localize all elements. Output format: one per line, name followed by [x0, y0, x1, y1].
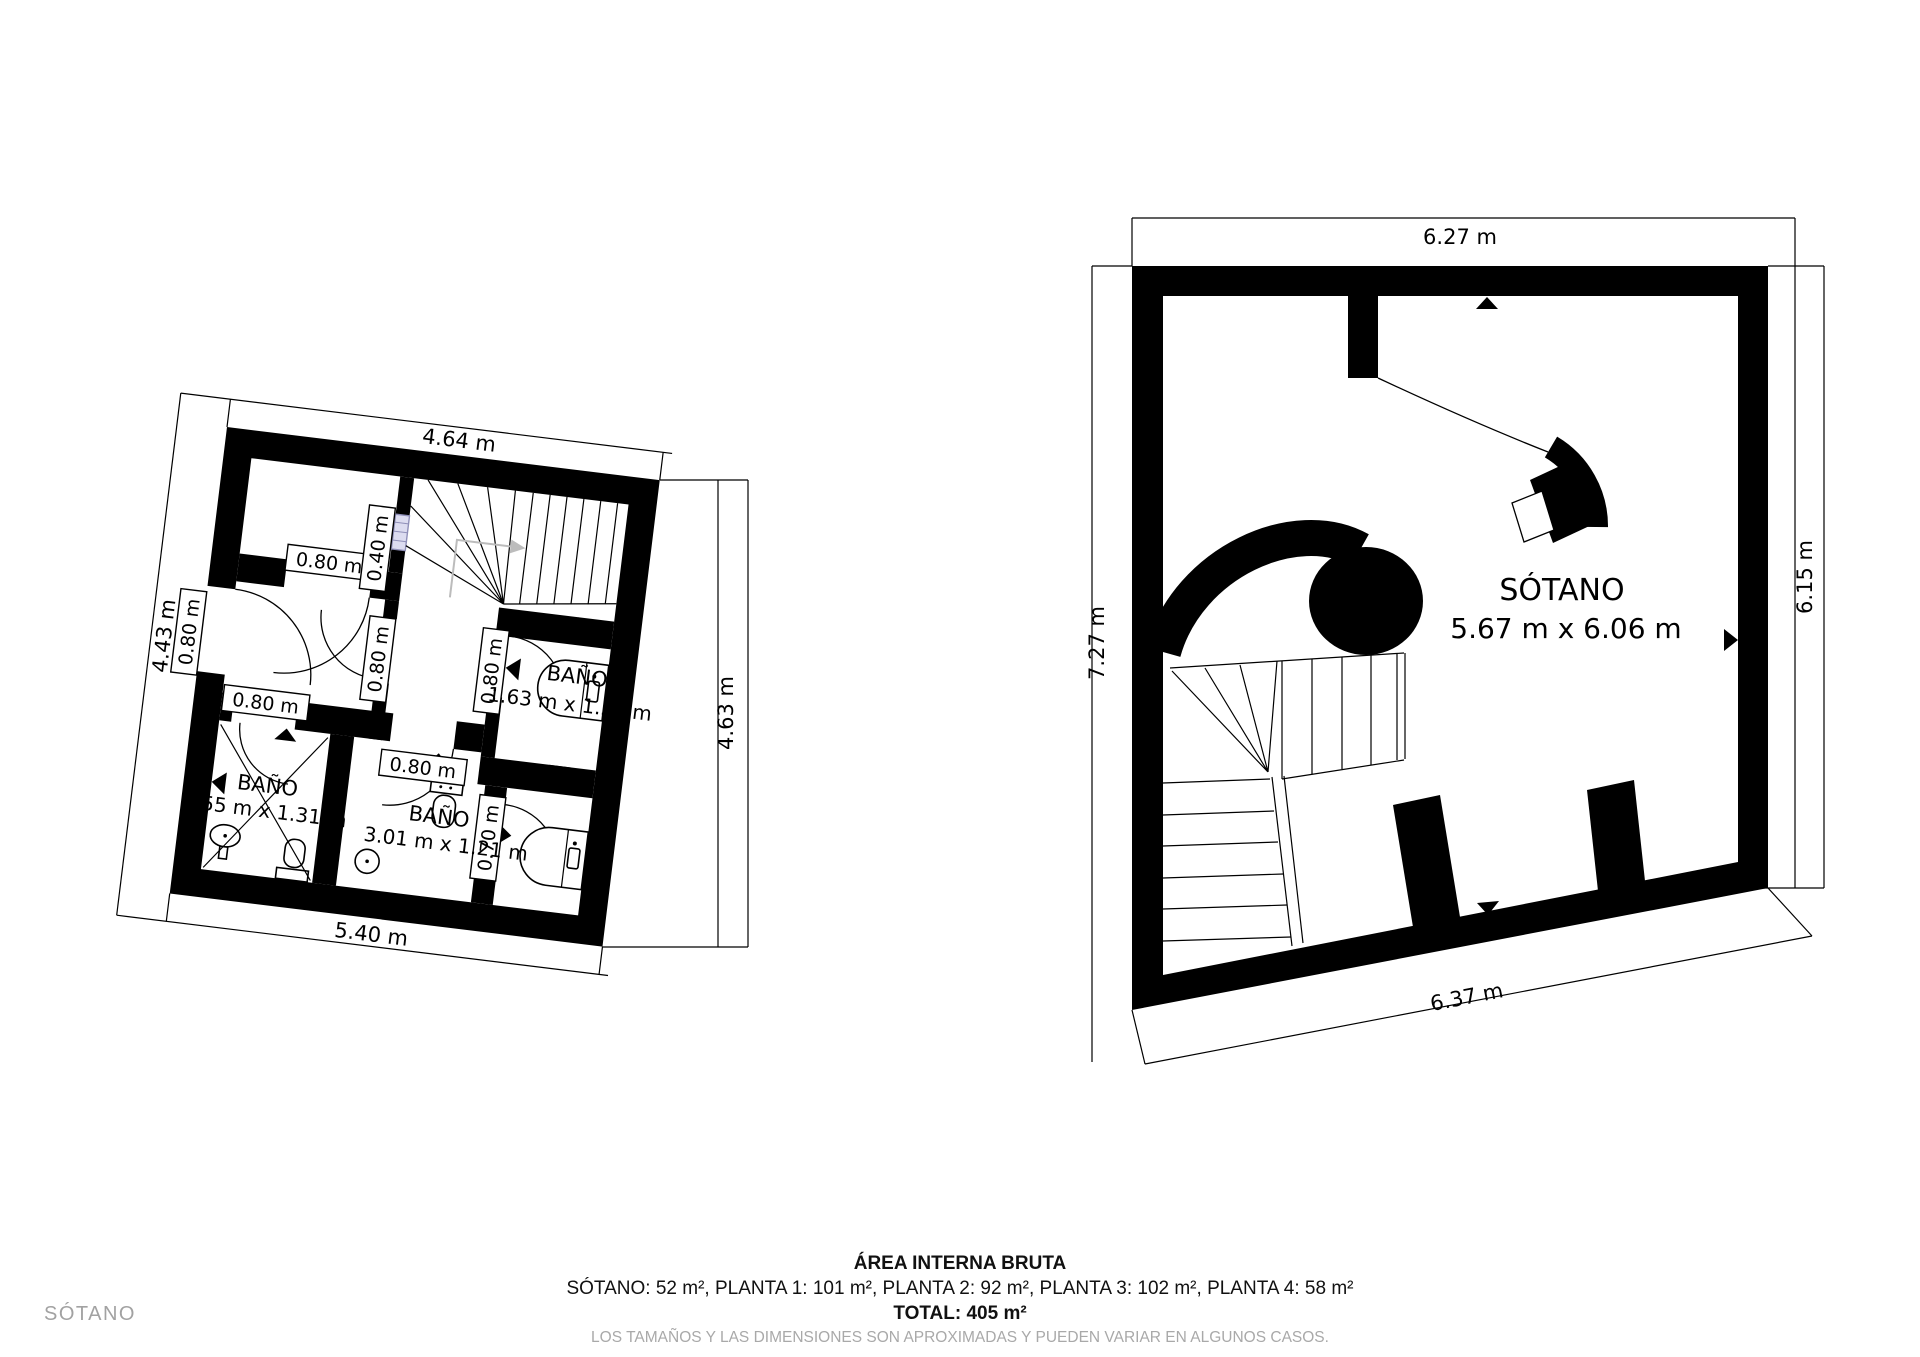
bottom-wall-stub-1 [1393, 795, 1460, 927]
toilet-icon-left [275, 838, 312, 883]
right-plan-dim-top: 6.27 m [1423, 225, 1497, 249]
sink-icon-left [207, 823, 241, 860]
left-plan-dim-right: 4.63 m [714, 676, 738, 750]
left-plan-dim-bottom: 5.40 m [333, 918, 409, 951]
top-wall-stub [1348, 296, 1378, 378]
left-plan-dim-top: 4.64 m [421, 424, 497, 457]
right-plan-dim-bottom: 6.37 m [1428, 978, 1505, 1016]
right-plan-dim-right: 6.15 m [1793, 540, 1817, 614]
spiral-stair-icon [1163, 538, 1423, 655]
footer-areas: SÓTANO: 52 m², PLANTA 1: 101 m², PLANTA … [0, 1278, 1920, 1300]
footer-info: ÁREA INTERNA BRUTA SÓTANO: 52 m², PLANTA… [0, 1253, 1920, 1347]
bottom-wall-stub-2 [1587, 780, 1645, 891]
footer-title: ÁREA INTERNA BRUTA [0, 1253, 1920, 1275]
right-plan-dim-left: 7.27 m [1085, 606, 1109, 680]
stairs-icon-right-plan [1163, 653, 1405, 946]
stair-walkline-arrow-icon [510, 539, 527, 555]
entry-door [1378, 378, 1598, 543]
stair-walkline [450, 540, 511, 604]
floorplan-canvas: 0.80 m 0.80 m 0.40 m 0.80 m 0.80 m 0.80 … [0, 0, 1920, 1357]
wall-markers-right-plan [1163, 297, 1738, 915]
footer-total: TOTAL: 405 m² [0, 1303, 1920, 1325]
right-floor-plan: 6.27 m 6.15 m 7.27 m 6.37 m [1085, 218, 1824, 1064]
left-floor-plan: 0.80 m 0.80 m 0.40 m 0.80 m 0.80 m 0.80 … [117, 393, 684, 977]
floor-tag-label: SÓTANO [44, 1303, 136, 1326]
sink-icon-mid [354, 848, 381, 875]
basement-room-name: SÓTANO [1499, 571, 1624, 608]
basement-room-dims: 5.67 m x 6.06 m [1450, 612, 1681, 645]
footer-disclaimer: LOS TAMAÑOS Y LAS DIMENSIONES SON APROXI… [0, 1329, 1920, 1347]
floorplan-page: 0.80 m 0.80 m 0.40 m 0.80 m 0.80 m 0.80 … [0, 0, 1920, 1357]
